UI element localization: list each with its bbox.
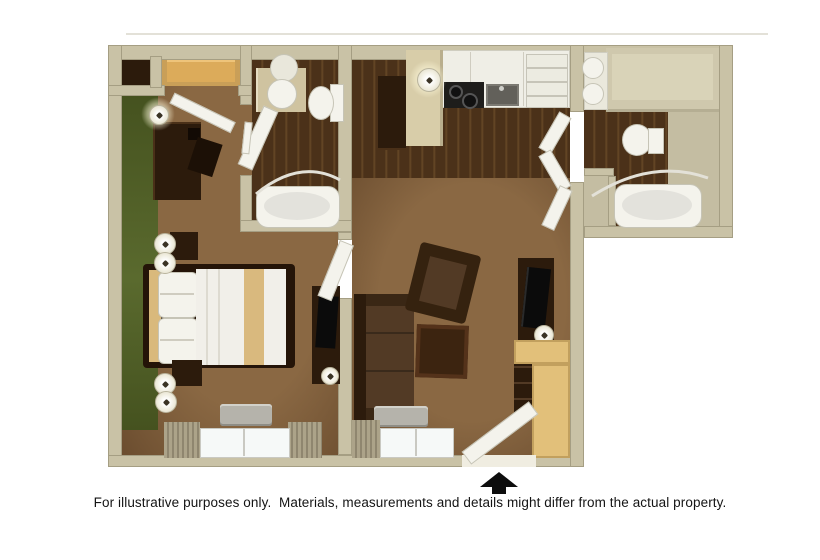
bathroom2-counter-top bbox=[612, 54, 713, 100]
pillow-seam bbox=[160, 293, 194, 295]
closet-hanging-area bbox=[122, 56, 150, 85]
sofa-cushion-seam bbox=[366, 332, 414, 334]
nightstand-bottom bbox=[172, 360, 202, 386]
disclaimer-caption: For illustrative purposes only. Material… bbox=[0, 495, 820, 510]
living-window bbox=[380, 428, 454, 458]
cabinet-seam bbox=[523, 52, 524, 106]
entrance-arrow-head bbox=[480, 472, 518, 487]
curtain-left bbox=[164, 422, 200, 458]
sofa bbox=[366, 294, 414, 420]
wall-bathroom1-left-upper bbox=[240, 45, 252, 105]
shelf-line bbox=[514, 366, 534, 368]
bathtub1-basin bbox=[264, 192, 330, 220]
wall-outer-right bbox=[719, 45, 733, 238]
vanity-sink bbox=[582, 83, 604, 105]
bathtub2-basin bbox=[622, 190, 692, 220]
refrigerator bbox=[526, 54, 568, 108]
wall-divider-stub bbox=[338, 232, 352, 240]
bedroom-tv bbox=[315, 295, 339, 348]
shelf-line bbox=[514, 398, 534, 400]
bed-tan-runner bbox=[244, 269, 264, 365]
dresser-lamp bbox=[321, 367, 339, 385]
linen-closet-interior bbox=[584, 176, 608, 226]
floor-plan-image: For illustrative purposes only. Material… bbox=[0, 0, 820, 560]
bed-duvet bbox=[196, 269, 244, 365]
table-lamp bbox=[155, 391, 177, 413]
writing-desk bbox=[532, 364, 570, 458]
duvet-fold bbox=[218, 269, 220, 365]
wall-bathroom1-right bbox=[338, 45, 352, 232]
wall-right-lower bbox=[570, 182, 584, 467]
desk-lamp bbox=[149, 105, 169, 125]
bathroom1-sink bbox=[270, 54, 298, 82]
sofa-cushion-seam bbox=[366, 370, 414, 372]
vanity-sink bbox=[582, 57, 604, 79]
bed-pillows-top bbox=[158, 272, 198, 318]
kitchen-faucet bbox=[499, 86, 504, 91]
window-mullion bbox=[243, 428, 245, 456]
kitchen-ceiling-light bbox=[417, 68, 441, 92]
entrance-arrow-stem bbox=[492, 487, 506, 494]
closet-shelf bbox=[167, 60, 235, 82]
wall-closet-bottom-right bbox=[238, 85, 252, 96]
stove-burner bbox=[449, 85, 463, 99]
stove-burner bbox=[462, 93, 478, 109]
toilet1-bowl bbox=[308, 86, 334, 120]
page-divider-line bbox=[126, 33, 768, 35]
window-mullion bbox=[415, 428, 417, 456]
writing-desk-top bbox=[514, 340, 570, 364]
pantry-cabinet bbox=[378, 76, 406, 150]
bathroom1-sink-bowl bbox=[267, 79, 297, 109]
bedroom-window bbox=[200, 428, 290, 458]
wall-right-upper bbox=[570, 45, 584, 112]
table-lamp bbox=[154, 252, 176, 274]
coffee-table bbox=[415, 324, 469, 379]
shelf-line bbox=[514, 382, 534, 384]
curtain-living bbox=[352, 420, 380, 458]
air-conditioner-living bbox=[374, 406, 428, 427]
wall-linen-closet-top bbox=[584, 168, 614, 176]
air-conditioner-bedroom bbox=[220, 404, 272, 426]
bed-pillows-bottom bbox=[158, 318, 198, 364]
wall-left bbox=[108, 45, 122, 467]
pillow-seam bbox=[160, 339, 194, 341]
duvet-fold bbox=[206, 269, 208, 365]
curtain-right bbox=[288, 422, 322, 458]
wall-closet-divider bbox=[150, 56, 162, 88]
toilet2-tank bbox=[648, 128, 664, 154]
wall-bedroom-living-divider bbox=[338, 298, 352, 455]
bed-duvet-foot bbox=[264, 269, 286, 365]
